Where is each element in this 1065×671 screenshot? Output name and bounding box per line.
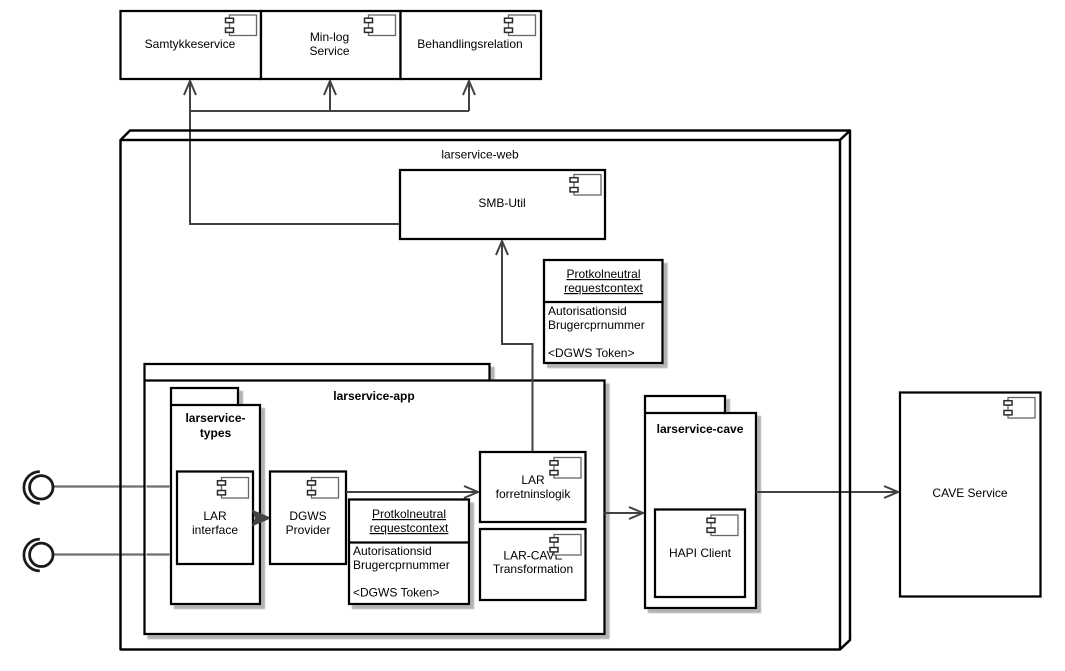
svg-text:Samtykkeservice: Samtykkeservice — [145, 37, 236, 51]
svg-text:larservice-cave: larservice-cave — [657, 422, 744, 436]
svg-text:Min-log: Min-log — [310, 30, 349, 44]
svg-text:Behandlingsrelation: Behandlingsrelation — [417, 37, 522, 51]
svg-text:interface: interface — [192, 523, 238, 537]
svg-text:SMB-Util: SMB-Util — [478, 196, 525, 210]
svg-text:Autorisationsid: Autorisationsid — [548, 304, 627, 318]
svg-text:Service: Service — [309, 44, 349, 58]
svg-text:requestcontext: requestcontext — [370, 521, 449, 535]
svg-text:types: types — [200, 426, 232, 440]
svg-text:Brugercprnummer: Brugercprnummer — [548, 318, 645, 332]
svg-text:HAPI Client: HAPI Client — [669, 546, 732, 560]
svg-text:Protkolneutral: Protkolneutral — [372, 507, 446, 521]
svg-text:forretninslogik: forretninslogik — [496, 487, 572, 501]
svg-text:Provider: Provider — [286, 523, 331, 537]
svg-text:larservice-app: larservice-app — [333, 389, 414, 403]
svg-text:CAVE Service: CAVE Service — [932, 486, 1007, 500]
svg-text:larservice-: larservice- — [185, 411, 245, 425]
svg-text:larservice-web: larservice-web — [441, 148, 519, 162]
svg-text:LAR: LAR — [521, 473, 545, 487]
svg-text:Autorisationsid: Autorisationsid — [353, 544, 432, 558]
svg-text:<DGWS Token>: <DGWS Token> — [353, 586, 439, 600]
svg-text:LAR: LAR — [203, 509, 227, 523]
svg-text:<DGWS Token>: <DGWS Token> — [548, 346, 634, 360]
svg-text:Brugercprnummer: Brugercprnummer — [353, 558, 450, 572]
svg-text:Protkolneutral: Protkolneutral — [566, 267, 640, 281]
svg-text:DGWS: DGWS — [289, 509, 326, 523]
svg-text:requestcontext: requestcontext — [564, 281, 643, 295]
svg-text:Transformation: Transformation — [493, 562, 573, 576]
